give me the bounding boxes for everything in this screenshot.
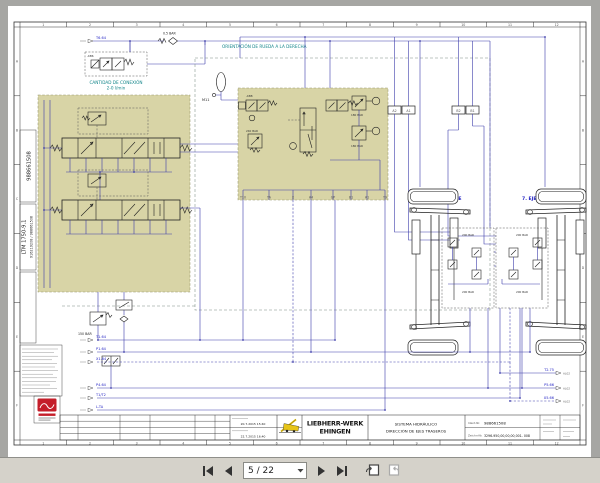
frame-col-label: 2 bbox=[89, 23, 91, 27]
pressure-label: 180 BAR bbox=[351, 113, 363, 117]
frame-col-label: 8 bbox=[369, 441, 371, 445]
connector-label: L-TA bbox=[96, 405, 104, 409]
frame-col-label: 10 bbox=[461, 23, 465, 27]
last-page-icon bbox=[335, 465, 348, 477]
frame-col-label: 6 bbox=[276, 441, 278, 445]
previous-view-button[interactable] bbox=[364, 462, 381, 480]
ident-label: Ident-Nr. bbox=[468, 421, 480, 425]
frame-col-label: 6 bbox=[276, 23, 278, 27]
drawing-title-line1: SISTEMA HIDRÁULICO bbox=[395, 422, 437, 427]
frame-row-label: B bbox=[582, 128, 584, 132]
ident-vertical: 916219208 / 988661508 bbox=[30, 216, 34, 258]
frame-col-label: 3 bbox=[136, 23, 138, 27]
frame-col-label: 11 bbox=[508, 441, 512, 445]
flow-note-line2: 2-0 l/min bbox=[107, 86, 126, 91]
connector-label: T1/T2 bbox=[95, 393, 106, 397]
port-label: A1 bbox=[406, 109, 410, 113]
orientation-heading: ORIENTACIÓN DE RUEDA A LA DERECHA bbox=[222, 44, 307, 49]
frame-col-label: 11 bbox=[508, 23, 512, 27]
company-name-line2: EHINGEN bbox=[320, 428, 351, 436]
model-vertical: LTM 1750-9.1 bbox=[22, 220, 28, 255]
page-navigation-toolbar bbox=[0, 457, 600, 483]
page-dropdown-caret[interactable] bbox=[294, 464, 306, 477]
frame-col-label: 2 bbox=[89, 441, 91, 445]
connector-tag: AL02 bbox=[563, 372, 570, 376]
next-view-icon bbox=[385, 464, 400, 477]
page-number-box bbox=[243, 462, 307, 479]
schematic-sheet: 1 2 3 4 5 6 7 8 9 10 11 12 1 2 3 4 5 6 7… bbox=[0, 0, 600, 457]
connector-label: T2.75 bbox=[543, 368, 554, 372]
frame-col-label: 4 bbox=[182, 23, 184, 27]
frame-col-label: 10 bbox=[461, 441, 465, 445]
frame-col-label: 7 bbox=[322, 441, 324, 445]
connector-label: X5.66 bbox=[544, 396, 554, 400]
pressure-label: 180 BAR bbox=[351, 144, 363, 148]
port-label: T10 bbox=[239, 196, 246, 200]
connector-label: P1.64 bbox=[96, 347, 107, 351]
frame-col-label: 12 bbox=[555, 23, 559, 27]
pressure-label: 200 BAR bbox=[462, 290, 474, 294]
frame-col-label: 7 bbox=[322, 23, 324, 27]
port-label: A1 bbox=[365, 196, 369, 200]
connector-tag: AL02 bbox=[563, 387, 570, 391]
drawing-number-label: Zeichn-Nr. bbox=[468, 434, 483, 438]
frame-col-label: 8 bbox=[369, 23, 371, 27]
axle-label: 7. EJE bbox=[522, 196, 537, 202]
page-nav-group bbox=[200, 462, 401, 480]
frame-col-label: 9 bbox=[416, 441, 418, 445]
frame-row-label: F bbox=[16, 404, 18, 408]
connector-tag: AL02 bbox=[563, 400, 570, 404]
doc-number-vertical: 988661508 bbox=[27, 151, 33, 181]
component-tag: -KB8 bbox=[246, 94, 253, 98]
frame-col-label: 5 bbox=[229, 23, 231, 27]
previous-page-button[interactable] bbox=[220, 462, 237, 480]
frame-row-label: F bbox=[582, 404, 584, 408]
first-page-button[interactable] bbox=[200, 462, 217, 480]
company-name-line1: LIEBHERR-WERK bbox=[307, 420, 365, 428]
frame-col-label: 3 bbox=[136, 441, 138, 445]
previous-view-icon bbox=[365, 464, 380, 477]
next-view-button[interactable] bbox=[384, 462, 401, 480]
last-page-button[interactable] bbox=[333, 462, 350, 480]
port-label: B2 bbox=[456, 109, 460, 113]
pressure-label: 0.5 BAR bbox=[163, 32, 176, 36]
flow-note-line1: CANTIDAD DE CONEXIÓN bbox=[89, 80, 142, 85]
port-label: T9 bbox=[382, 196, 387, 200]
frame-col-label: 1 bbox=[42, 441, 44, 445]
connector-label: T6.64 bbox=[95, 36, 107, 40]
pressure-label: 200 BAR bbox=[516, 290, 528, 294]
frame-row-label: E bbox=[16, 335, 18, 339]
chevron-down-icon bbox=[297, 468, 304, 473]
pressure-label: 240 BAR bbox=[246, 129, 258, 133]
port-label: B1 bbox=[349, 196, 353, 200]
frame-col-label: 12 bbox=[555, 441, 559, 445]
drawing-title-line2: DIRECCIÓN DE EJES TRASEROS bbox=[386, 429, 447, 434]
previous-page-icon bbox=[223, 465, 234, 477]
frame-col-label: 1 bbox=[42, 23, 44, 27]
connector-label: P5.66 bbox=[544, 383, 554, 387]
component-tag: -KB6 bbox=[87, 54, 94, 58]
pressure-label: 150 BAR bbox=[78, 332, 92, 336]
frame-col-label: 9 bbox=[416, 23, 418, 27]
port-label: TA bbox=[266, 196, 272, 200]
titleblock-date2: 22.7.2015 16:40 bbox=[241, 435, 266, 439]
titleblock-date1: 20.7.2015 15:40 bbox=[241, 422, 266, 426]
port-label: A4 bbox=[309, 196, 313, 200]
port-label: B1 bbox=[470, 109, 474, 113]
drawing-number-value: 3296-950,00,00,00,001- 008 bbox=[484, 434, 530, 438]
frame-row-label: B bbox=[16, 128, 18, 132]
next-page-button[interactable] bbox=[313, 462, 330, 480]
pressure-label: 200 BAR bbox=[462, 233, 474, 237]
frame-row-label: E bbox=[582, 335, 584, 339]
ident-value: 988661508 bbox=[484, 421, 506, 426]
connector-label: T1.64 bbox=[95, 335, 107, 339]
frame-col-label: 5 bbox=[229, 441, 231, 445]
component-tag: M11 bbox=[202, 98, 209, 102]
port-label: GP bbox=[331, 196, 335, 200]
first-page-icon bbox=[202, 465, 215, 477]
pressure-label: 200 BAR bbox=[516, 233, 528, 237]
page-number-input[interactable] bbox=[244, 464, 294, 477]
frame-col-label: 4 bbox=[182, 441, 184, 445]
next-page-icon bbox=[316, 465, 327, 477]
port-label: A2 bbox=[392, 109, 396, 113]
application-window: { "toolbar": { "page_indicator": "5 / 22… bbox=[0, 0, 600, 482]
connector-label: P4.64 bbox=[96, 383, 107, 387]
connector-label: X1.64 bbox=[96, 357, 107, 361]
